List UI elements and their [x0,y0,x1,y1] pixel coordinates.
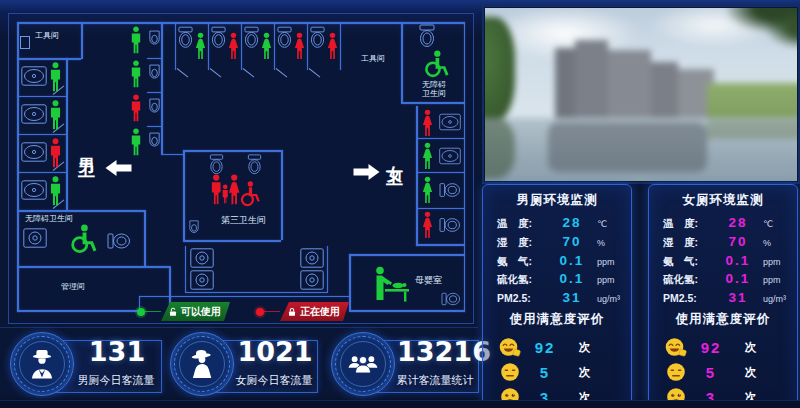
family-icon [209,174,267,210]
happy-emoji-icon [665,337,687,357]
male-occupancy-figure [49,138,62,168]
room-label-accessible-left: 无障碍卫生间 [25,214,73,223]
wall [416,106,418,246]
room-label-tool-left: 工具间 [35,31,59,40]
metric-label: 硫化氢: [497,273,555,287]
wall [161,154,184,155]
stat-label: 累计客流量统计 [393,373,477,388]
toilet-icon [107,230,131,252]
wall [144,210,146,266]
metric-unit: ℃ [597,219,607,229]
male-occupancy-figure [130,94,142,122]
dashboard: 工具间 无障碍卫生间 管理间 男卫 [0,0,800,408]
metric-row: 湿 度:70% [497,234,631,253]
metric-value: 0.1 [721,253,755,268]
toilet-icon [211,26,226,49]
wall [349,254,351,310]
accessible-right-line1: 无障碍 [422,80,446,89]
metric-label: 温 度: [497,217,555,231]
female-occupancy-figure [293,32,306,60]
female-occupancy-figure [227,32,240,60]
neutral-emoji-icon [499,362,521,382]
bathtub-icon [21,142,47,162]
male-env-metrics: 温 度:28℃ 湿 度:70% 氨 气:0.1ppm 硫化氢:0.1ppm PM… [483,213,631,309]
metric-value: 31 [721,290,755,305]
group-visitor-icon [347,348,379,380]
stat-emblem [170,332,234,396]
metric-row: PM2.5:31ug/m³ [497,290,631,309]
wall [327,246,328,292]
wall [17,96,66,97]
happy-emoji-icon [499,337,521,357]
rating-value: 5 [687,364,735,381]
bathtub-icon [439,147,461,165]
lock-closed-icon [287,307,297,317]
male-env-title: 男厕环境监测 [483,192,631,209]
wall [416,244,465,246]
wall [147,92,161,93]
toilet-icon [310,26,325,49]
wall [274,22,275,70]
metric-unit: ppm [597,275,615,285]
male-occupancy-figure [49,62,62,92]
camera-feed [482,5,800,184]
female-satisfaction-title: 使用满意度评价 [649,311,797,328]
male-satisfaction-title: 使用满意度评价 [483,311,631,328]
wall [340,22,341,70]
wall [307,22,308,70]
stat-female-daily: 1021 女厕今日客流量 [170,332,318,396]
toilet-icon [209,154,224,175]
in-use-label: 正在使用 [300,305,340,319]
female-occupancy-figure [421,211,434,239]
available-badge: 可以使用 [161,302,230,321]
accessible-right-line2: 卫生间 [422,89,446,98]
metric-value: 0.1 [555,271,589,286]
male-occupancy-figure [130,128,142,156]
metric-label: 湿 度: [663,236,721,250]
metric-unit: ug/m³ [597,294,620,304]
wall [17,58,81,60]
wall [464,22,466,312]
female-visitor-icon [186,348,218,380]
left-arrow-icon [105,160,132,176]
toilet-icon [277,26,292,49]
door-mark [210,68,222,77]
urinal-icon [148,64,161,81]
metric-label: 硫化氢: [663,273,721,287]
divider [0,327,478,328]
bathtub-icon [21,66,47,86]
sink-icon [189,270,215,290]
camera-feed-image [485,8,797,181]
room-label-management: 管理间 [61,282,85,291]
wall [185,246,186,292]
wall [147,58,161,59]
male-occupancy-figure [130,26,142,54]
stat-label: 男厕今日客流量 [72,373,160,388]
male-zone-label: 男卫 [75,144,98,154]
wheelchair-icon [421,50,451,78]
metric-row: 温 度:28℃ [663,215,797,234]
wall [17,22,19,312]
metric-unit: ug/m³ [763,294,786,304]
room-label-mother-baby: 母婴室 [415,276,442,285]
female-occupancy-figure [326,32,339,60]
metric-value: 0.1 [555,253,589,268]
female-env-panel: 女厕环境监测 温 度:28℃ 湿 度:70% 氨 气:0.1ppm 硫化氢:0.… [648,184,798,408]
wall [183,240,281,242]
door-mark [177,68,189,77]
female-env-metrics: 温 度:28℃ 湿 度:70% 氨 气:0.1ppm 硫化氢:0.1ppm PM… [649,213,797,309]
metric-label: 温 度: [663,217,721,231]
wall [139,296,350,297]
metric-value: 31 [555,290,589,305]
metric-row: PM2.5:31ug/m³ [663,290,797,309]
room-label-tool-right: 工具间 [361,54,385,63]
wall [241,22,242,70]
wall [416,208,465,209]
neutral-emoji-icon [665,362,687,382]
toilet-icon [439,180,461,200]
female-occupancy-figure [421,142,434,170]
female-zone-label: 女卫 [383,152,406,162]
female-ratings: 92次 5次 3次 [649,332,797,408]
wall [17,310,139,312]
metric-label: 氨 气: [497,255,555,269]
toilet-icon [247,154,262,175]
sink-icon [299,270,325,290]
male-occupancy-figure [49,100,62,130]
sink-icon [189,248,215,268]
legend-available: 可以使用 [137,302,230,321]
metric-unit: ℃ [763,219,773,229]
sink-icon [299,248,325,268]
metric-label: 湿 度: [497,236,555,250]
lock-open-icon [168,307,178,317]
rating-unit: 次 [579,340,591,355]
right-arrow-icon [353,164,380,180]
wall [185,292,328,293]
toilet-icon [419,24,435,48]
rating-unit: 次 [745,340,757,355]
door-mark [309,68,321,77]
male-visitor-icon [26,348,58,380]
bathtub-icon [21,180,47,200]
wall [349,310,465,312]
rating-value: 92 [687,339,735,356]
toilet-icon [244,26,259,49]
wall [147,126,161,127]
urinal-icon [148,98,161,115]
floorplan: 工具间 无障碍卫生间 管理间 男卫 [8,13,474,324]
available-dot-icon [137,308,145,316]
in-use-dot-icon [256,308,264,316]
door-icon [20,36,30,49]
metric-unit: ppm [763,275,781,285]
wall [17,172,66,173]
metric-unit: ppm [597,257,615,267]
stat-value: 131 [76,336,158,367]
available-label: 可以使用 [181,305,221,319]
metric-unit: % [597,238,605,248]
room-label-accessible-right: 无障碍 卫生间 [414,80,454,98]
male-ratings: 92次 5次 3次 [483,332,631,408]
urinal-icon [148,30,161,47]
metric-value: 70 [555,234,589,249]
stat-emblem [331,332,395,396]
metric-row: 氨 气:0.1ppm [497,253,631,272]
wall [161,22,163,154]
male-occupancy-figure [49,176,62,206]
baby-care-icon [371,266,411,302]
wall [416,138,465,139]
wall [349,254,465,256]
urinal-icon [148,132,161,149]
stat-value: 13216 [397,336,475,367]
rating-row: 92次 [665,335,797,360]
stat-emblem [10,332,74,396]
room-label-third-restroom: 第三卫生间 [221,216,266,225]
metric-value: 28 [555,215,589,230]
toilet-icon [441,290,461,308]
female-occupancy-figure [194,32,207,60]
metric-row: 氨 气:0.1ppm [663,253,797,272]
metric-label: PM2.5: [663,292,721,304]
metric-value: 28 [721,215,755,230]
bathtub-icon [439,113,461,131]
sink-icon [23,228,47,248]
toilet-icon [439,215,461,235]
wall [17,134,66,135]
metric-value: 70 [721,234,755,249]
wall [281,150,283,240]
female-occupancy-figure [421,176,434,204]
in-use-badge: 正在使用 [280,302,349,321]
wall [401,22,403,102]
status-legend: 可以使用 正在使用 [137,302,349,321]
wall [401,102,465,104]
bathtub-icon [21,104,47,124]
stat-label: 女厕今日客流量 [232,373,316,388]
rating-value: 92 [521,339,569,356]
rating-unit: 次 [579,365,591,380]
metric-label: PM2.5: [497,292,555,304]
door-mark [276,68,288,77]
wall [81,22,83,59]
metric-row: 温 度:28℃ [497,215,631,234]
rating-row: 5次 [499,360,631,385]
legend-connector [145,311,161,313]
wall [17,266,169,268]
wall [175,22,176,70]
urinal-icon [188,220,200,235]
legend-connector [264,311,280,313]
metric-unit: ppm [763,257,781,267]
bottom-strip [0,400,800,408]
rating-value: 5 [521,364,569,381]
wall [183,150,185,240]
stat-male-daily: 131 男厕今日客流量 [10,332,162,396]
wall [208,22,209,70]
wall [183,150,281,152]
toilet-icon [178,26,193,49]
male-occupancy-figure [130,60,142,88]
wall [17,210,144,212]
metric-value: 0.1 [721,271,755,286]
wall [416,172,465,173]
wall [66,58,68,210]
rating-row: 5次 [665,360,797,385]
male-env-panel: 男厕环境监测 温 度:28℃ 湿 度:70% 氨 气:0.1ppm 硫化氢:0.… [482,184,632,408]
legend-in-use: 正在使用 [256,302,349,321]
rating-unit: 次 [745,365,757,380]
metric-unit: % [763,238,771,248]
female-occupancy-figure [260,32,273,60]
metric-row: 硫化氢:0.1ppm [497,271,631,290]
metric-row: 湿 度:70% [663,234,797,253]
stat-value: 1021 [236,336,314,367]
female-occupancy-figure [421,109,434,137]
female-env-title: 女厕环境监测 [649,192,797,209]
door-mark [243,68,255,77]
stat-total: 13216 累计客流量统计 [331,332,479,396]
metric-label: 氨 气: [663,255,721,269]
rating-row: 92次 [499,335,631,360]
metric-row: 硫化氢:0.1ppm [663,271,797,290]
wheelchair-icon [67,224,99,254]
